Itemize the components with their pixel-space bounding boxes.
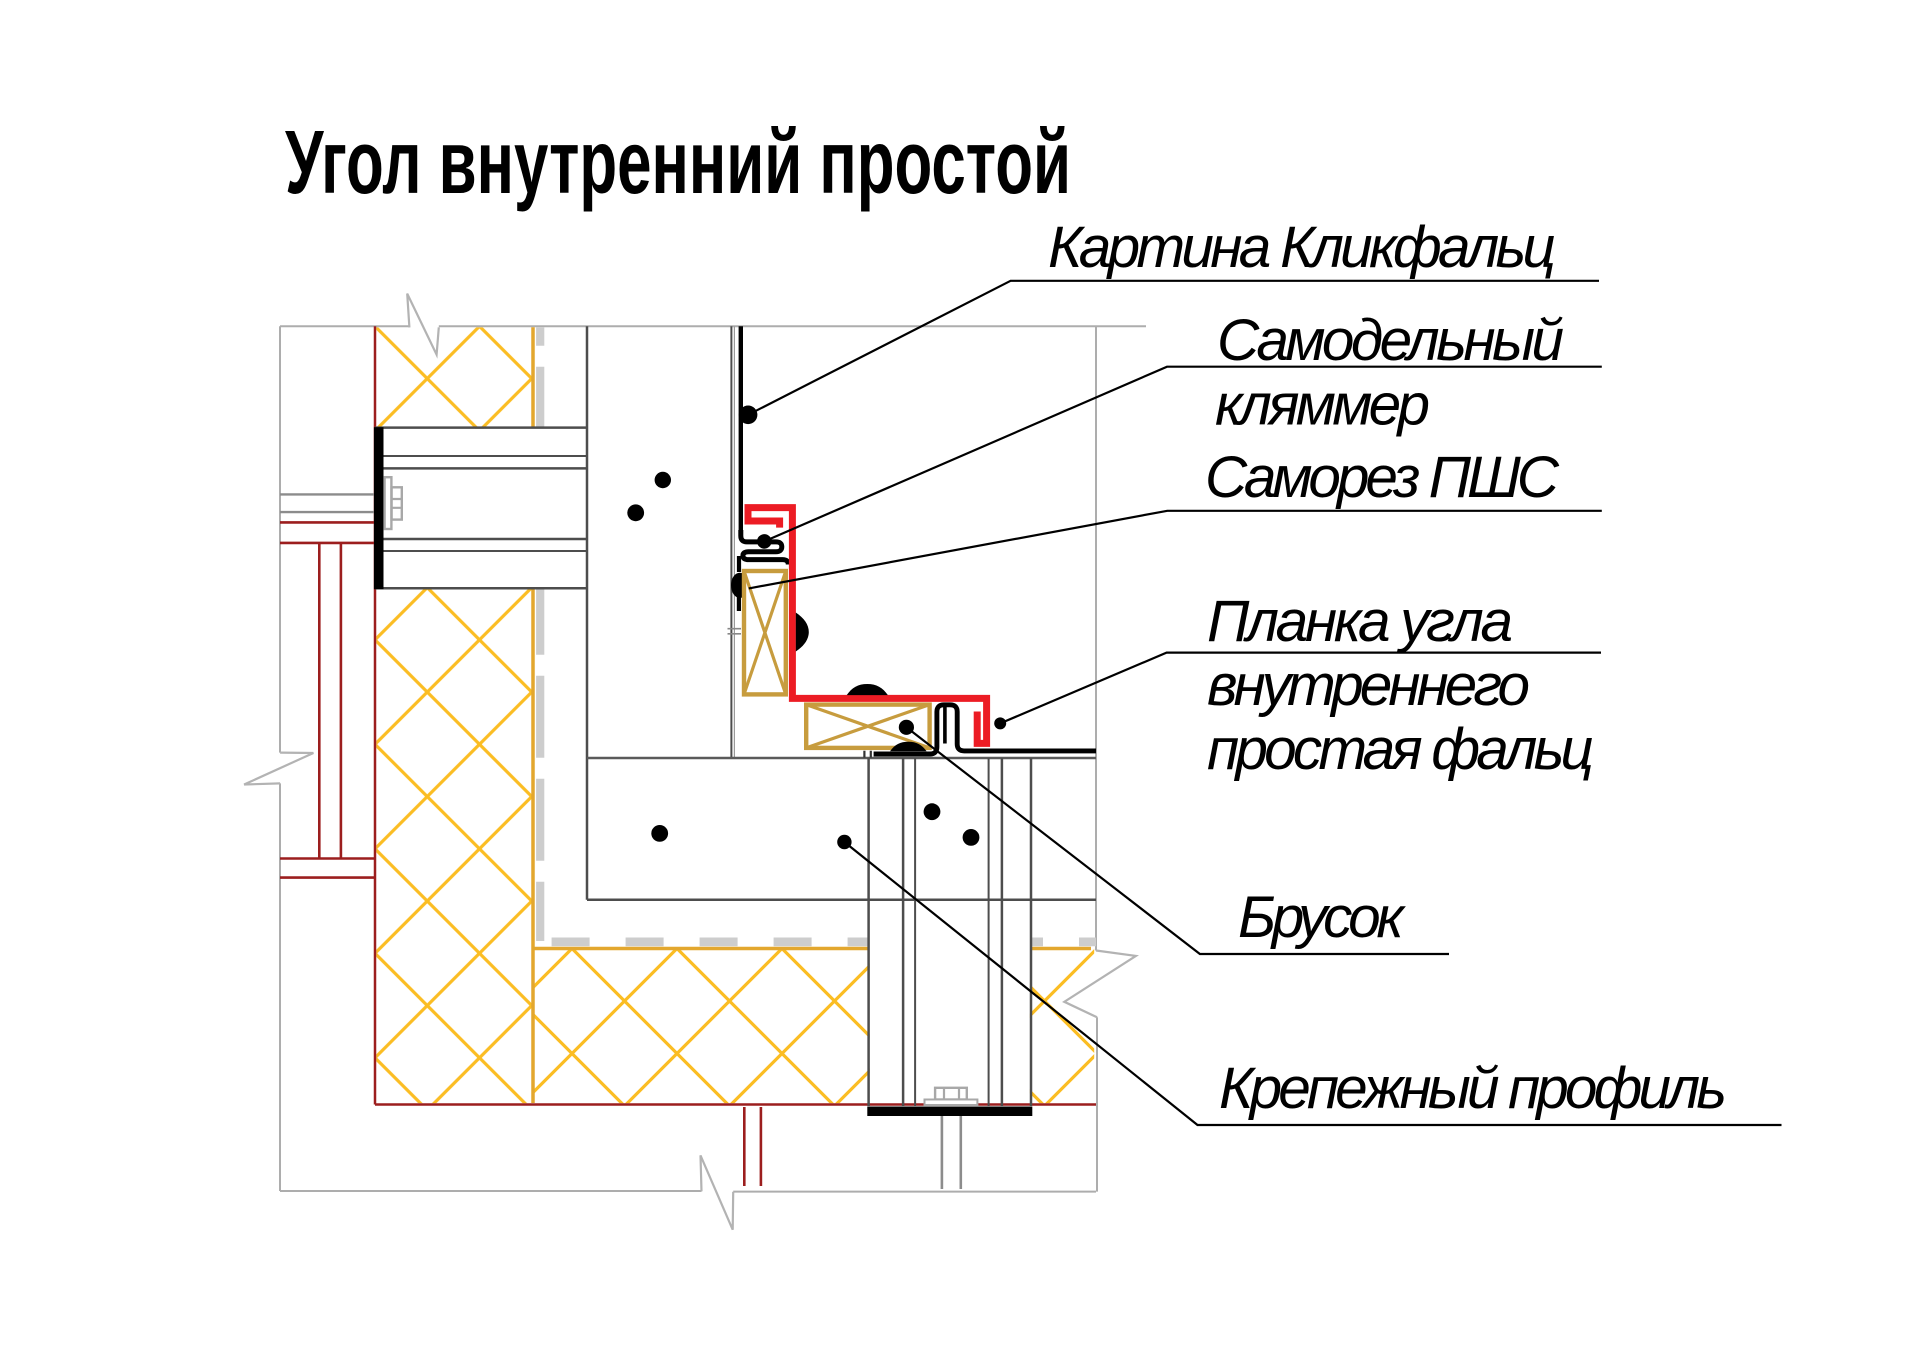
svg-text:простая фальц: простая фальц [1207,717,1594,782]
svg-text:Саморез ПШС: Саморез ПШС [1205,445,1560,510]
svg-text:внутреннего: внутреннего [1207,653,1530,718]
svg-text:Крепежный профиль: Крепежный профиль [1219,1056,1727,1121]
svg-text:Самодельный: Самодельный [1217,308,1564,373]
svg-text:кляммер: кляммер [1215,373,1430,438]
svg-text:Брусок: Брусок [1238,885,1406,950]
svg-text:Угол внутренний простой: Угол внутренний простой [285,113,1071,213]
svg-text:Картина Кликфальц: Картина Кликфальц [1048,215,1556,280]
svg-text:Планка угла: Планка угла [1207,589,1513,654]
